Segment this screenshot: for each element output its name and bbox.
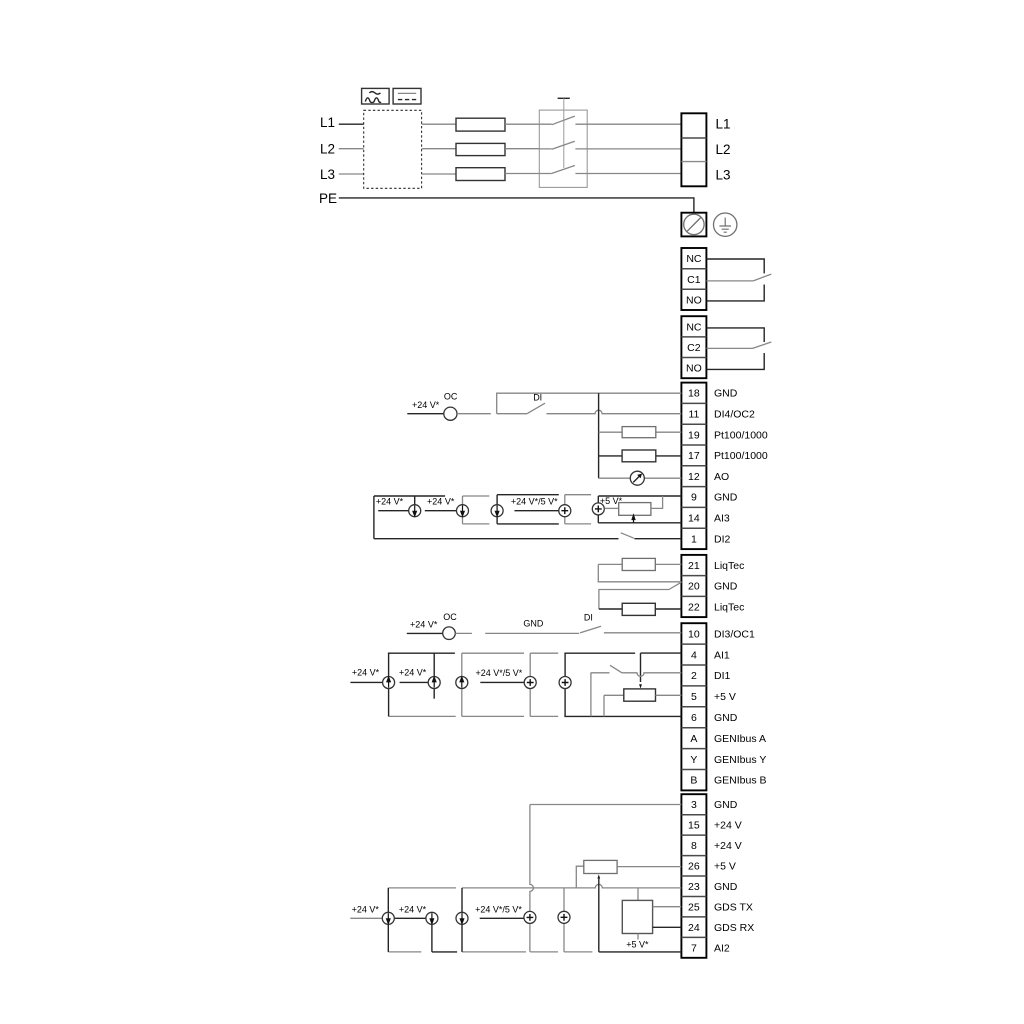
svg-text:Pt100/1000: Pt100/1000 — [714, 429, 768, 441]
svg-text:6: 6 — [691, 712, 697, 724]
svg-text:+5 V*: +5 V* — [600, 496, 623, 506]
svg-text:GENIbus Y: GENIbus Y — [714, 754, 766, 766]
svg-text:AI1: AI1 — [714, 649, 730, 661]
svg-text:GDS TX: GDS TX — [714, 901, 753, 913]
svg-text:GND: GND — [714, 712, 738, 724]
svg-text:AO: AO — [714, 471, 729, 483]
svg-text:+24 V: +24 V — [714, 840, 742, 852]
svg-text:+24 V*/5 V*: +24 V*/5 V* — [511, 497, 558, 507]
svg-text:24: 24 — [688, 922, 700, 934]
svg-text:NO: NO — [686, 363, 702, 375]
svg-text:GND: GND — [714, 388, 738, 400]
svg-text:22: 22 — [688, 602, 700, 614]
svg-text:23: 23 — [688, 881, 700, 893]
svg-text:GND: GND — [523, 618, 544, 628]
svg-text:17: 17 — [688, 450, 700, 462]
svg-text:+5 V: +5 V — [714, 861, 736, 873]
svg-text:+24 V*: +24 V* — [399, 668, 427, 678]
svg-text:12: 12 — [688, 471, 700, 483]
svg-text:3: 3 — [691, 799, 697, 811]
svg-text:GENIbus A: GENIbus A — [714, 733, 766, 745]
svg-text:PE: PE — [319, 191, 337, 206]
svg-text:DI2: DI2 — [714, 533, 731, 545]
svg-text:L2: L2 — [320, 141, 335, 156]
svg-text:C1: C1 — [687, 274, 701, 286]
svg-text:8: 8 — [691, 840, 697, 852]
svg-text:C2: C2 — [687, 342, 701, 354]
svg-text:NO: NO — [686, 294, 702, 306]
svg-text:+5 V*: +5 V* — [626, 940, 649, 950]
svg-text:14: 14 — [688, 513, 700, 525]
svg-text:11: 11 — [688, 409, 699, 421]
svg-text:+24 V*: +24 V* — [352, 905, 380, 915]
svg-text:26: 26 — [688, 861, 700, 873]
svg-text:A: A — [690, 733, 697, 745]
svg-text:L3: L3 — [716, 167, 731, 182]
svg-text:+24 V*: +24 V* — [410, 620, 438, 630]
svg-text:L1: L1 — [716, 116, 731, 131]
svg-text:DI4/OC2: DI4/OC2 — [714, 409, 755, 421]
svg-text:10: 10 — [688, 628, 700, 640]
svg-text:GND: GND — [714, 492, 738, 504]
svg-text:DI3/OC1: DI3/OC1 — [714, 628, 755, 640]
svg-text:OC: OC — [443, 612, 457, 622]
svg-text:20: 20 — [688, 581, 700, 593]
svg-text:Pt100/1000: Pt100/1000 — [714, 450, 768, 462]
svg-text:7: 7 — [691, 942, 697, 954]
svg-text:Y: Y — [690, 754, 697, 766]
svg-text:21: 21 — [688, 560, 700, 572]
svg-text:+24 V: +24 V — [714, 820, 742, 832]
svg-text:+24 V*: +24 V* — [352, 668, 380, 678]
svg-text:18: 18 — [688, 388, 700, 400]
svg-text:15: 15 — [688, 820, 700, 832]
svg-text:DI: DI — [584, 613, 593, 623]
svg-text:AI2: AI2 — [714, 942, 730, 954]
svg-text:B: B — [690, 775, 697, 787]
svg-text:19: 19 — [688, 429, 700, 441]
svg-text:L2: L2 — [716, 142, 731, 157]
svg-text:GDS RX: GDS RX — [714, 922, 754, 934]
svg-text:2: 2 — [691, 670, 697, 682]
svg-text:OC: OC — [444, 391, 458, 401]
svg-text:+5 V: +5 V — [714, 691, 736, 703]
svg-text:+24 V*/5 V*: +24 V*/5 V* — [476, 668, 523, 678]
svg-text:5: 5 — [691, 691, 697, 703]
svg-text:25: 25 — [688, 901, 700, 913]
svg-text:LiqTec: LiqTec — [714, 560, 744, 572]
svg-text:NC: NC — [686, 321, 702, 333]
svg-text:+24 V*: +24 V* — [427, 496, 455, 506]
svg-text:DI: DI — [533, 393, 542, 403]
svg-text:L3: L3 — [320, 167, 335, 182]
svg-text:9: 9 — [691, 492, 697, 504]
svg-text:1: 1 — [691, 533, 697, 545]
svg-text:GND: GND — [714, 799, 738, 811]
svg-text:GENIbus B: GENIbus B — [714, 775, 767, 787]
svg-text:+24 V*: +24 V* — [412, 400, 440, 410]
svg-text:+24 V*: +24 V* — [399, 905, 427, 915]
svg-text:AI3: AI3 — [714, 513, 730, 525]
svg-text:L1: L1 — [320, 115, 335, 130]
svg-text:4: 4 — [691, 649, 697, 661]
svg-text:LiqTec: LiqTec — [714, 602, 744, 614]
svg-text:GND: GND — [714, 581, 738, 593]
svg-text:+24 V*: +24 V* — [376, 496, 404, 506]
svg-text:NC: NC — [686, 253, 702, 265]
svg-text:GND: GND — [714, 881, 738, 893]
svg-text:+24 V*/5 V*: +24 V*/5 V* — [475, 905, 522, 915]
svg-text:DI1: DI1 — [714, 670, 731, 682]
